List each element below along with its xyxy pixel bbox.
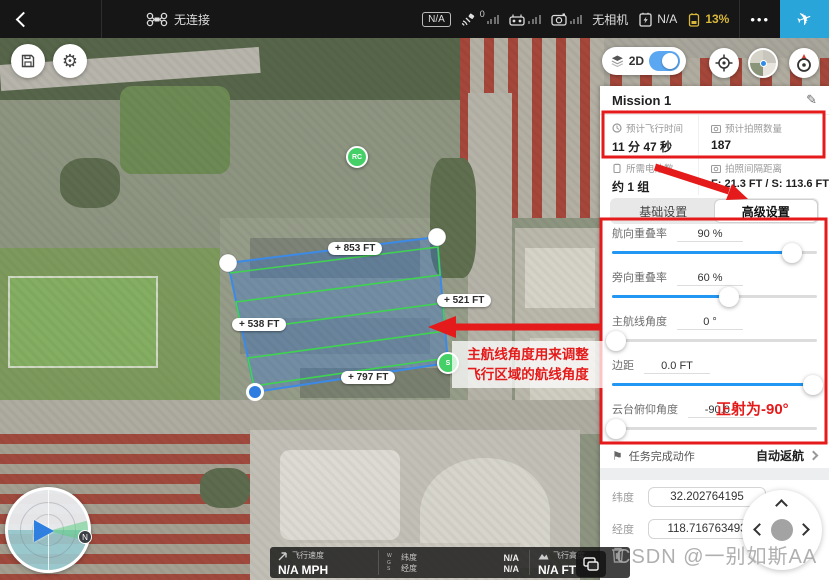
mission-stats: 预计飞行时间 11 分 47 秒 预计拍照数量 187 所需电池数 约 1 组 … — [600, 115, 829, 194]
margin-row: 边距0.0 FT — [600, 352, 829, 396]
satellite-icon — [461, 12, 478, 26]
map-mode-pill[interactable]: 2D — [602, 47, 686, 75]
map-2d-toggle[interactable] — [649, 51, 680, 71]
battery-count-value: 约 1 组 — [612, 178, 698, 195]
longitude-label: 经度 — [612, 521, 638, 537]
gimbal-note: 正射为-90° — [716, 398, 789, 419]
map-mode-label: 2D — [629, 54, 644, 68]
watermark: CSDN @一别如斯AA — [610, 540, 817, 569]
telemetry-lng-label: 经度 — [401, 563, 417, 574]
rc-battery-icon — [687, 12, 701, 27]
margin-label: 边距 — [612, 357, 634, 373]
latitude-field[interactable]: 32.202764195 — [648, 487, 766, 507]
minimap-toggle-button[interactable] — [748, 48, 778, 78]
camera-link-icon — [551, 13, 567, 26]
telemetry-lng-value: N/A — [504, 564, 520, 574]
tab-basic-settings[interactable]: 基础设置 — [612, 200, 715, 222]
chevron-right-icon — [809, 451, 819, 461]
side-overlap-label: 旁向重叠率 — [612, 269, 667, 285]
gimbal-pitch-label: 云台俯仰角度 — [612, 401, 678, 417]
photo-interval-icon — [711, 164, 721, 173]
view-switch-button[interactable] — [576, 551, 606, 577]
camera-signal-bars — [570, 14, 583, 24]
rc-location-marker[interactable]: RC — [346, 146, 368, 168]
side-overlap-row: 旁向重叠率60 % — [600, 264, 829, 308]
nudge-up-icon[interactable] — [775, 499, 788, 512]
edge-length-top[interactable]: + 853 FT — [328, 242, 382, 255]
picture-in-picture-icon — [583, 557, 599, 571]
edge-length-bottom[interactable]: + 797 FT — [341, 371, 395, 384]
route-angle-row: 主航线角度0 ° — [600, 308, 829, 352]
mission-panel: Mission 1 ✎ 预计飞行时间 11 分 47 秒 预计拍照数量 187 … — [600, 86, 829, 580]
nudge-right-icon[interactable] — [797, 523, 810, 536]
flag-icon: ⚑ — [612, 449, 623, 463]
more-menu-button[interactable]: ••• — [740, 12, 780, 27]
side-overlap-slider[interactable] — [612, 295, 817, 298]
photo-interval-value: F: 21.3 FT / S: 113.6 FT — [711, 178, 829, 190]
takeoff-button[interactable]: ✈ — [780, 0, 829, 38]
trash-icon — [610, 546, 626, 564]
save-mission-button[interactable] — [11, 44, 45, 78]
wgs-label: WGS — [387, 553, 392, 573]
margin-value[interactable]: 0.0 FT — [644, 360, 710, 374]
battery-count-label: 所需电池数 — [626, 161, 674, 175]
nudge-center-dot — [771, 519, 793, 541]
drone-icon — [146, 12, 168, 27]
back-button[interactable] — [0, 0, 46, 38]
gimbal-pitch-slider[interactable] — [612, 427, 817, 430]
margin-slider[interactable] — [612, 383, 817, 386]
remote-controller-icon — [509, 13, 525, 26]
front-overlap-slider[interactable] — [612, 251, 817, 254]
aircraft-battery-icon — [638, 12, 653, 27]
rc-signal-bars — [528, 14, 541, 24]
layers-icon — [611, 54, 624, 68]
compass-north-icon — [794, 53, 814, 73]
finish-action-row[interactable]: ⚑ 任务完成动作 自动返航 — [600, 442, 829, 468]
clock-icon — [612, 123, 622, 133]
advanced-settings-sliders: 航向重叠率90 % 旁向重叠率60 % 主航线角度0 ° 边距0.0 FT 云台… — [600, 220, 829, 440]
nudge-left-icon[interactable] — [753, 523, 766, 536]
camera-status: 无相机 — [592, 11, 628, 28]
aircraft-battery-value: N/A — [657, 12, 677, 26]
gimbal-pitch-row: 云台俯仰角度-90.0 ° — [600, 396, 829, 440]
speed-label: 飞行速度 — [292, 550, 324, 561]
locate-icon — [715, 54, 733, 72]
altitude-icon — [538, 551, 549, 560]
flight-mode-badge[interactable]: N/A — [422, 12, 451, 27]
flight-time-label: 预计飞行时间 — [626, 121, 683, 135]
attitude-compass[interactable] — [5, 487, 91, 573]
telemetry-lat-value: N/A — [504, 553, 520, 563]
takeoff-plane-icon: ✈ — [794, 7, 815, 32]
side-overlap-value[interactable]: 60 % — [677, 272, 743, 286]
photo-count-label: 预计拍照数量 — [725, 121, 782, 135]
route-angle-note: 主航线角度用来调整 飞行区域的航线角度 — [452, 341, 604, 388]
route-angle-value[interactable]: 0 ° — [677, 316, 743, 330]
telemetry-lat-label: 纬度 — [401, 552, 417, 563]
aircraft-heading-arrow — [34, 520, 54, 542]
route-angle-label: 主航线角度 — [612, 313, 667, 329]
edit-mission-icon[interactable]: ✎ — [806, 92, 817, 108]
back-chevron-icon — [15, 11, 31, 27]
compass-north-badge: N — [78, 530, 92, 544]
minimap-position-dot — [760, 60, 767, 67]
connection-status: 无连接 — [174, 11, 210, 28]
status-topbar: 无连接 N/A 0 无相机 N/A 13% ••• ✈ — [0, 0, 829, 38]
finish-action-label: 任务完成动作 — [629, 448, 695, 464]
locate-me-button[interactable] — [709, 48, 739, 78]
edge-length-left[interactable]: + 538 FT — [232, 318, 286, 331]
photo-count-icon — [711, 124, 721, 133]
compass-reset-button[interactable] — [789, 48, 819, 78]
tab-advanced-settings[interactable]: 高级设置 — [715, 200, 818, 222]
speed-value: N/A MPH — [278, 564, 368, 576]
front-overlap-label: 航向重叠率 — [612, 225, 667, 241]
rc-battery-percent: 13% — [705, 12, 729, 26]
battery-count-icon — [612, 163, 622, 173]
mission-settings-button[interactable]: ⚙ — [53, 44, 87, 78]
latitude-label: 纬度 — [612, 489, 638, 505]
gear-icon: ⚙ — [62, 51, 78, 72]
route-angle-slider[interactable] — [612, 339, 817, 342]
front-overlap-value[interactable]: 90 % — [677, 228, 743, 242]
mission-title: Mission 1 — [612, 93, 671, 108]
speed-icon — [278, 551, 288, 561]
satellite-count: 0 — [480, 9, 485, 19]
photo-count-value: 187 — [711, 138, 829, 152]
edge-length-right[interactable]: + 521 FT — [437, 294, 491, 307]
flight-time-value: 11 分 47 秒 — [612, 138, 698, 155]
satellite-signal-bars — [487, 14, 500, 24]
save-icon — [20, 53, 36, 69]
finish-action-value: 自动返航 — [756, 447, 804, 464]
photo-interval-label: 拍照间隔距离 — [725, 161, 782, 175]
front-overlap-row: 航向重叠率90 % — [600, 220, 829, 264]
